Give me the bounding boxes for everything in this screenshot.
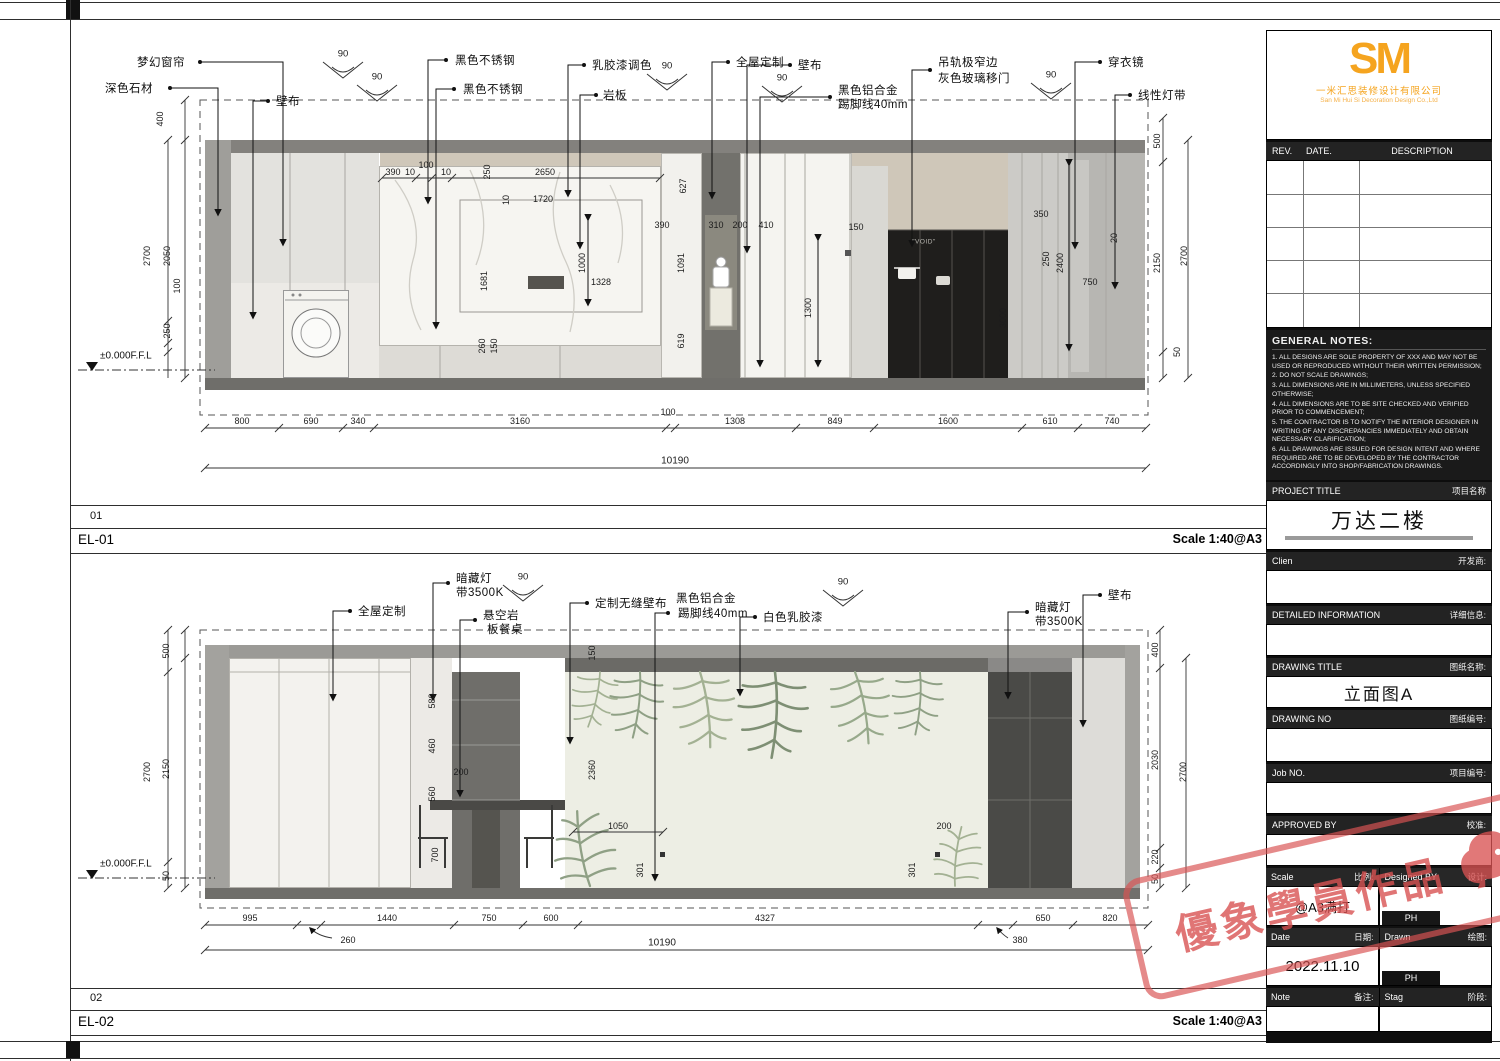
el02-label-table-2: 板餐桌 — [487, 621, 523, 637]
el01-dim: 50 — [1172, 347, 1182, 357]
drawing-title-value: 立面图A — [1344, 680, 1414, 705]
client-bar: Clien 开发商: — [1266, 552, 1492, 570]
client-label-cn: 开发商: — [1458, 555, 1486, 567]
drawing-no-label-cn: 图纸编号: — [1450, 713, 1486, 725]
el01-label-mirror: 穿衣镜 — [1108, 54, 1144, 70]
el02-row-line-top — [70, 988, 1266, 989]
el02-dim: 220 — [1150, 849, 1160, 864]
drawn-label-cn: 绘图: — [1468, 931, 1487, 943]
el02-row-line-bottom — [70, 1035, 1266, 1036]
project-title-label: PROJECT TITLE — [1272, 486, 1341, 496]
el01-angle-2: 90 — [372, 72, 383, 83]
general-notes-title: GENERAL NOTES: — [1272, 335, 1486, 350]
detailed-info-box — [1266, 624, 1492, 656]
el01-dim: 2700 — [142, 246, 152, 266]
el01-dim: 1328 — [591, 277, 611, 287]
company-name-en: San Mi Hui Si Decoration Design Co.,Ltd — [1267, 97, 1491, 104]
el02-dim-sub-left: 260 — [340, 935, 355, 945]
el02-angle-1: 90 — [518, 572, 529, 583]
el02-label-white-paint: 白色乳胶漆 — [763, 609, 823, 625]
el02-label-skirting-1: 黑色铝合金 — [676, 590, 736, 606]
drawing-no-bar: DRAWING NO 图纸编号: — [1266, 710, 1492, 728]
revision-header: REV. DATE. DESCRIPTION — [1266, 142, 1492, 160]
el02-dim: 2150 — [161, 759, 171, 779]
el02-dim: 301 — [635, 862, 645, 877]
el02-label-custom: 全屋定制 — [358, 603, 406, 619]
el01-dim: 619 — [676, 333, 686, 348]
el01-dim: 1600 — [938, 416, 958, 426]
el02-dim: 820 — [1102, 913, 1117, 923]
detailed-info-bar: DETAILED INFORMATION 详细信息: — [1266, 606, 1492, 624]
job-no-label-cn: 项目编号: — [1450, 767, 1486, 779]
el01-dim: 10 — [501, 195, 511, 205]
el01-dim: 1308 — [725, 416, 745, 426]
el02-dim: 400 — [1150, 642, 1160, 657]
el02-dim: 750 — [481, 913, 496, 923]
drawing-title-label-cn: 图纸名称: — [1450, 661, 1486, 673]
el01-row-line-top — [70, 505, 1266, 506]
client-label: Clien — [1272, 556, 1293, 566]
el02-label-skirting-2: 踢脚线40mm — [678, 605, 748, 621]
el01-angle-5: 90 — [1046, 70, 1057, 81]
el02-label-light-r2: 带3500K — [1035, 613, 1083, 629]
el01-dim: 2650 — [535, 167, 555, 177]
el01-dim: 800 — [234, 416, 249, 426]
el01-angle-1: 90 — [338, 49, 349, 60]
el01-dim: 340 — [350, 416, 365, 426]
el01-dim: 2150 — [1152, 253, 1162, 273]
el02-label-light-l2: 带3500K — [456, 584, 504, 600]
el01-dim: 310 — [708, 220, 723, 230]
el02-dim: 2030 — [1150, 750, 1160, 770]
el01-dim: 150 — [489, 338, 499, 353]
el01-dim: 410 — [758, 220, 773, 230]
el02-label-wall: 壁布 — [1108, 587, 1132, 603]
el02-dim: 500 — [161, 643, 171, 658]
el01-dim: 2700 — [1179, 246, 1189, 266]
el01-dim: 1000 — [577, 253, 587, 273]
el02-dim: 995 — [242, 913, 257, 923]
project-title-underline — [1285, 536, 1473, 540]
el01-dim: 400 — [155, 111, 165, 126]
el01-view-scale: Scale 1:40@A3 — [1042, 532, 1262, 546]
el01-dim: 100 — [660, 407, 675, 417]
el01-dim: 150 — [848, 222, 863, 232]
el01-label-slate: 岩板 — [603, 87, 627, 103]
el02-angle-2: 90 — [838, 577, 849, 588]
el01-label-custom: 全屋定制 — [736, 54, 784, 70]
project-title-bar: PROJECT TITLE 项目名称 — [1266, 482, 1492, 500]
general-note: 5. THE CONTRACTOR IS TO NOTIFY THE INTER… — [1272, 419, 1486, 445]
el02-dim-sub-right: 380 — [1012, 935, 1027, 945]
el02-dim: 2700 — [1178, 762, 1188, 782]
elephant-icon — [1444, 816, 1500, 904]
el01-label-stone: 深色石材 — [105, 80, 153, 96]
client-box — [1266, 570, 1492, 604]
el01-angle-3: 90 — [662, 61, 673, 72]
el01-dim-total: 10190 — [661, 456, 689, 467]
project-title-value: 万达二楼 — [1331, 505, 1427, 535]
drawing-title-label: DRAWING TITLE — [1272, 662, 1342, 672]
el01-angle-4: 90 — [777, 73, 788, 84]
drawing-no-box — [1266, 728, 1492, 762]
el01-dim: 750 — [1082, 277, 1097, 287]
el01-dim: 740 — [1104, 416, 1119, 426]
el02-dim: 650 — [1035, 913, 1050, 923]
el01-label-wall-left: 壁布 — [276, 93, 300, 109]
drawing-title-box: 立面图A — [1266, 676, 1492, 708]
el01-label-door-1: 吊轨极窄边 — [938, 54, 998, 70]
el01-dim: 627 — [678, 178, 688, 193]
el01-dim: 200 — [732, 220, 747, 230]
el02-row-line-mid — [70, 1010, 1266, 1011]
el02-dim: 4327 — [755, 913, 775, 923]
el02-dim: 2360 — [587, 760, 597, 780]
note-stage-values — [1266, 1006, 1492, 1032]
el01-dim: 500 — [1152, 133, 1162, 148]
el01-dim: 1300 — [803, 298, 813, 318]
el01-dim: 2400 — [1055, 253, 1065, 273]
stage-label-cn: 阶段: — [1468, 991, 1487, 1003]
revision-table — [1266, 160, 1492, 328]
el01-dim: 690 — [303, 416, 318, 426]
el01-dim: 1681 — [479, 271, 489, 291]
note-label: Note — [1271, 992, 1290, 1002]
drawn-cell: PH — [1379, 946, 1492, 986]
job-no-label: Job NO. — [1272, 768, 1305, 778]
note-value-cell — [1266, 1006, 1379, 1032]
el02-dim: 580 — [427, 693, 437, 708]
el02-dim: 150 — [587, 645, 597, 660]
stage-label: Stag — [1385, 992, 1404, 1002]
stage-value-cell — [1379, 1006, 1492, 1032]
note-label-cn: 备注: — [1354, 991, 1373, 1003]
el02-view-number: 02 — [90, 992, 102, 1004]
el01-dim: 250 — [1041, 251, 1051, 266]
project-title-label-cn: 项目名称 — [1452, 485, 1486, 497]
logo-box: SM 一米汇思装修设计有限公司 San Mi Hui Si Decoration… — [1266, 30, 1492, 140]
general-note: 1. ALL DESIGNS ARE SOLE PROPERTY OF XXX … — [1272, 354, 1486, 371]
el01-dim: 3160 — [510, 416, 530, 426]
el01-dim: 350 — [1033, 209, 1048, 219]
el01-dim: 849 — [827, 416, 842, 426]
approved-by-label: APPROVED BY — [1272, 820, 1337, 830]
el01-label-door-2: 灰色玻璃移门 — [938, 70, 1010, 86]
el01-dim: 10 — [441, 167, 451, 177]
el01-dim: 3000 — [998, 308, 1008, 328]
el02-dim: 301 — [907, 862, 917, 877]
date-col-header: DATE. — [1306, 146, 1358, 156]
general-note: 2. DO NOT SCALE DRAWINGS; — [1272, 372, 1486, 381]
el02-level-label: ±0.000F.F.L — [100, 859, 152, 870]
el02-dim: 560 — [427, 786, 437, 801]
drawn-value: PH — [1382, 971, 1440, 985]
drawing-no-label: DRAWING NO — [1272, 714, 1331, 724]
el02-dim: 1050 — [608, 821, 628, 831]
el02-dim: 200 — [936, 821, 951, 831]
el01-dim: 1720 — [533, 194, 553, 204]
company-logo: SM — [1267, 35, 1491, 83]
el02-dim: 50 — [161, 871, 171, 881]
el02-dim: 200 — [453, 767, 468, 777]
el01-level-label: ±0.000F.F.L — [100, 351, 152, 362]
el02-dim: 700 — [430, 847, 440, 862]
el01-dim: 390 — [385, 167, 400, 177]
el01-row-line-bottom — [70, 553, 1266, 554]
general-notes: GENERAL NOTES: 1. ALL DESIGNS ARE SOLE P… — [1266, 330, 1492, 480]
el02-dim: 2700 — [142, 762, 152, 782]
el02-dim: 1440 — [377, 913, 397, 923]
rev-col-header: REV. — [1272, 146, 1306, 156]
description-col-header: DESCRIPTION — [1358, 146, 1486, 156]
detailed-info-label-cn: 详细信息: — [1450, 609, 1486, 621]
el02-dim: 460 — [427, 738, 437, 753]
el01-label-skirting-2: 踢脚线40mm — [838, 96, 908, 112]
el01-dim: 10 — [405, 167, 415, 177]
el01-label-curtain: 梦幻窗帘 — [137, 54, 185, 70]
el01-label-steel-mid: 黑色不锈钢 — [463, 81, 523, 97]
el01-view-number: 01 — [90, 510, 102, 522]
el01-dim: 610 — [1042, 416, 1057, 426]
el01-dim: 100 — [418, 160, 433, 170]
el02-dim-total: 10190 — [648, 938, 676, 949]
el02-label-seamless: 定制无缝壁布 — [595, 595, 667, 611]
company-name-cn: 一米汇思装修设计有限公司 — [1267, 83, 1491, 97]
general-note: 3. ALL DIMENSIONS ARE IN MILLIMETERS, UN… — [1272, 382, 1486, 399]
el01-dim: 1091 — [676, 253, 686, 273]
el01-label-steel-top: 黑色不锈钢 — [455, 52, 515, 68]
el01-view-code: EL-01 — [78, 532, 114, 547]
el02-dim: 600 — [543, 913, 558, 923]
el01-label-wall-mid: 壁布 — [798, 57, 822, 73]
el01-dim: 2050 — [162, 246, 172, 266]
el02-view-code: EL-02 — [78, 1014, 114, 1029]
el01-dim: 250 — [482, 164, 492, 179]
el01-label-paint: 乳胶漆调色 — [592, 57, 652, 73]
el01-dim: 390 — [654, 220, 669, 230]
general-note: 4. ALL DIMENSIONS ARE TO BE SITE CHECKED… — [1272, 401, 1486, 418]
el01-row-line-mid — [70, 528, 1266, 529]
el02-view-scale: Scale 1:40@A3 — [1042, 1014, 1262, 1028]
el01-void-text: "VOID" — [912, 239, 936, 246]
job-no-bar: Job NO. 项目编号: — [1266, 764, 1492, 782]
general-note: 6. ALL DRAWINGS ARE ISSUED FOR DESIGN IN… — [1272, 446, 1486, 472]
el01-dim: 260 — [477, 338, 487, 353]
drawing-sheet: 梦幻窗帘 深色石材 壁布 黑色不锈钢 黑色不锈钢 乳胶漆调色 岩板 全屋定制 壁… — [0, 0, 1500, 1061]
el01-label-led: 线性灯带 — [1138, 87, 1186, 103]
detailed-info-label: DETAILED INFORMATION — [1272, 610, 1380, 620]
el01-dim: 20 — [1109, 233, 1119, 243]
note-stage-bar: Note 备注: Stag 阶段: — [1266, 988, 1492, 1006]
el01-dim: 250 — [162, 323, 172, 338]
drawing-title-bar: DRAWING TITLE 图纸名称: — [1266, 658, 1492, 676]
el01-dim: 100 — [172, 278, 182, 293]
project-title-box: 万达二楼 — [1266, 500, 1492, 550]
